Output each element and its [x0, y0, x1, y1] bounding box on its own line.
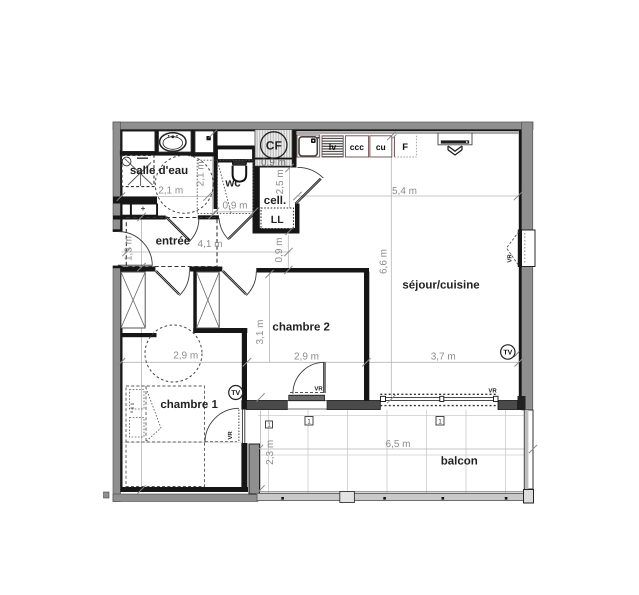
svg-text:0,9 m: 0,9 m	[261, 157, 286, 168]
svg-text:4,1 m: 4,1 m	[197, 239, 222, 250]
svg-text:wc: wc	[224, 177, 241, 189]
svg-text:5,4 m: 5,4 m	[392, 186, 417, 197]
svg-text:1,3 m: 1,3 m	[124, 236, 135, 261]
svg-text:VR: VR	[314, 386, 323, 393]
svg-text:séjour/cuisine: séjour/cuisine	[402, 280, 479, 292]
svg-text:1: 1	[438, 418, 442, 425]
svg-text:VR: VR	[227, 431, 234, 440]
svg-text:6,6 m: 6,6 m	[379, 249, 390, 274]
svg-text:2,9 m: 2,9 m	[294, 351, 319, 362]
svg-text:balcon: balcon	[441, 456, 478, 468]
svg-text:CF: CF	[266, 139, 282, 153]
svg-text:cell.: cell.	[264, 195, 286, 207]
svg-text:3,1 m: 3,1 m	[255, 319, 266, 344]
svg-text:2,1 m: 2,1 m	[196, 161, 207, 186]
svg-text:TV: TV	[231, 390, 240, 397]
svg-text:VR: VR	[488, 387, 497, 394]
svg-text:VR: VR	[507, 254, 514, 263]
svg-text:chambre 2: chambre 2	[272, 322, 330, 334]
svg-text:2,5 m: 2,5 m	[275, 169, 286, 194]
svg-text:F: F	[402, 142, 408, 153]
svg-text:salle d'eau: salle d'eau	[130, 165, 188, 177]
svg-text:lv: lv	[329, 142, 337, 152]
svg-text:TV: TV	[503, 350, 512, 357]
svg-text:LL: LL	[271, 214, 284, 226]
svg-text:entrée: entrée	[156, 235, 191, 247]
svg-text:chambre 1: chambre 1	[160, 399, 218, 411]
svg-text:2,3 m: 2,3 m	[265, 440, 276, 465]
svg-text:ccc: ccc	[350, 142, 364, 152]
svg-text:2,9 m: 2,9 m	[173, 350, 198, 361]
svg-text:0,9 m: 0,9 m	[274, 237, 285, 262]
svg-text:cu: cu	[376, 142, 386, 152]
svg-text:0,9 m: 0,9 m	[222, 201, 247, 212]
svg-text:1: 1	[307, 418, 311, 425]
svg-text:3,7 m: 3,7 m	[431, 352, 456, 363]
svg-text:2,1 m: 2,1 m	[158, 186, 183, 197]
svg-text:6,5 m: 6,5 m	[385, 439, 410, 450]
